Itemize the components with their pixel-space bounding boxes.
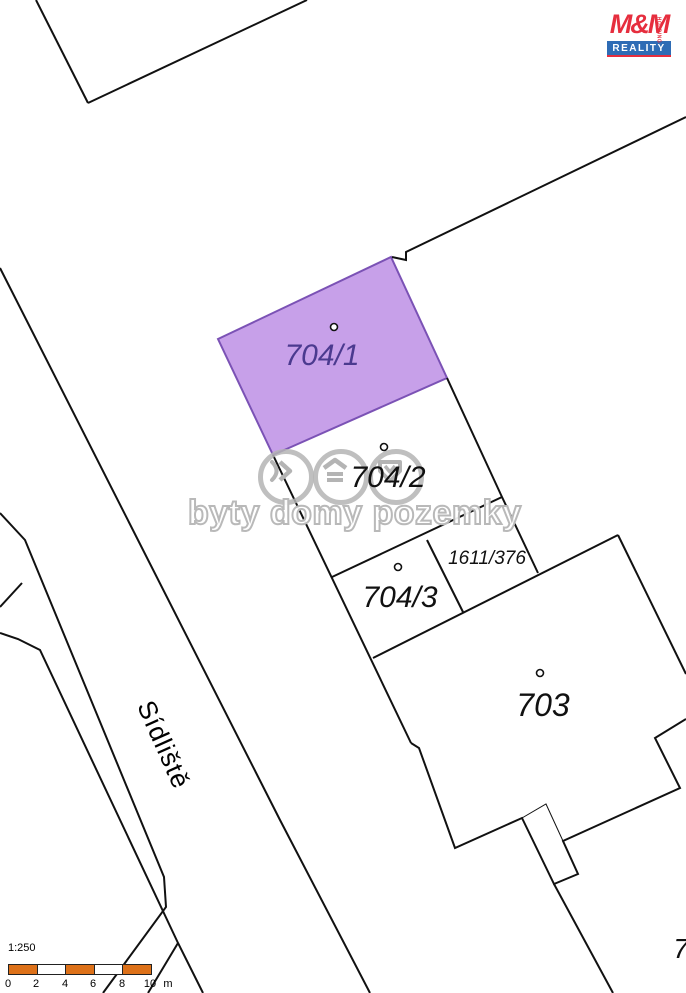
scale-tick: 6: [83, 978, 103, 990]
scale-unit: m: [158, 978, 178, 990]
scale-tick-labels: 0 2 4 6 8 10 m: [0, 978, 210, 992]
scale-tick: 8: [112, 978, 132, 990]
scale-tick: 0: [0, 978, 18, 990]
agency-logo: M&M HOLDING REALITY: [607, 9, 671, 57]
nw-building-edge-right: [88, 0, 307, 103]
building-703-outline: [411, 719, 686, 884]
west-edge-fragment: [0, 583, 22, 607]
parcel-street-boundary: [273, 455, 411, 743]
cadastral-map: byty domy pozemky 704/1704/2704/31611/37…: [0, 0, 686, 993]
building-703-annex-thin-edge: [522, 804, 563, 841]
ne-boundary-line: [392, 117, 686, 260]
scale-segment: [66, 965, 95, 974]
street-west-edge: [0, 513, 166, 993]
parcel-704-1: [218, 257, 447, 455]
scale-ratio-label: 1:250: [8, 942, 36, 954]
scale-segment: [38, 965, 67, 974]
scale-bar-segments: [8, 964, 152, 975]
scale-tick: 2: [26, 978, 46, 990]
parcel-704-2-704-3-boundary: [332, 497, 502, 577]
map-base-layer: [0, 0, 686, 993]
scale-segment: [95, 965, 124, 974]
building-703-top-right-edge: [618, 535, 686, 674]
parcel-704-2-east-boundary: [447, 378, 538, 573]
south-parcel-boundary: [554, 884, 613, 993]
building-703-top-left-edge: [373, 535, 618, 658]
logo-brand-row: M&M HOLDING: [607, 9, 671, 41]
logo-reality-banner: REALITY: [607, 41, 671, 57]
logo-side-text: HOLDING: [644, 17, 674, 44]
parcel-1611-376-west-boundary: [427, 540, 463, 612]
scale-segment: [9, 965, 38, 974]
nw-building-edge-left: [36, 0, 88, 103]
scale-tick: 10: [140, 978, 160, 990]
scale-tick: 4: [55, 978, 75, 990]
scale-segment: [123, 965, 151, 974]
scale-bar: 1:250 0 2 4 6 8 10 m: [0, 938, 210, 993]
